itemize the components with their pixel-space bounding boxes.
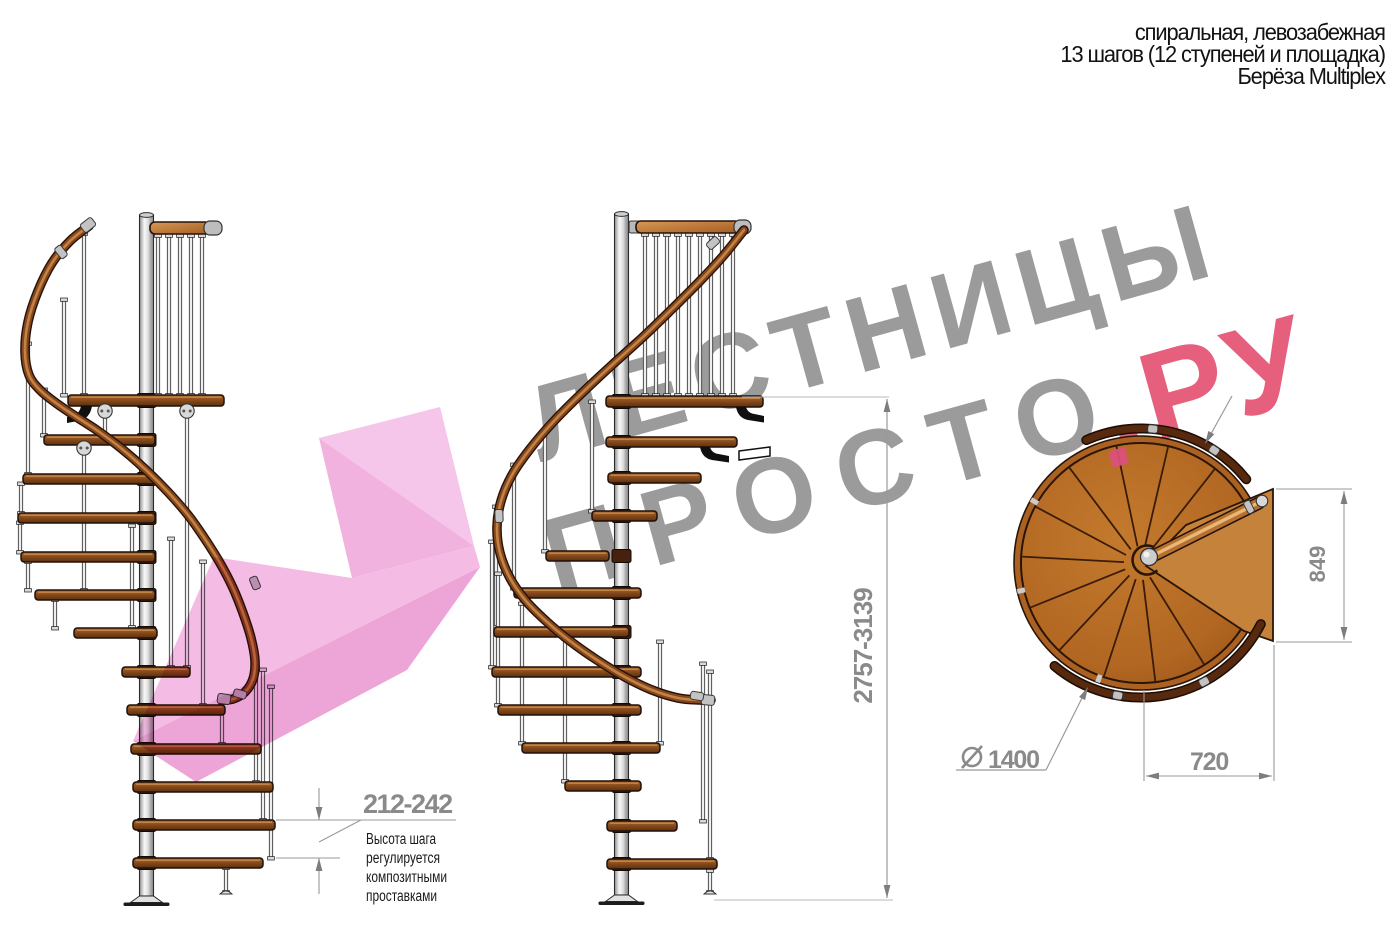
svg-text:720: 720 xyxy=(1190,748,1228,776)
svg-text:849: 849 xyxy=(1305,546,1330,583)
svg-text:2757-3139: 2757-3139 xyxy=(848,588,878,704)
svg-text:1400: 1400 xyxy=(988,746,1039,774)
svg-text:212-242: 212-242 xyxy=(363,789,452,819)
